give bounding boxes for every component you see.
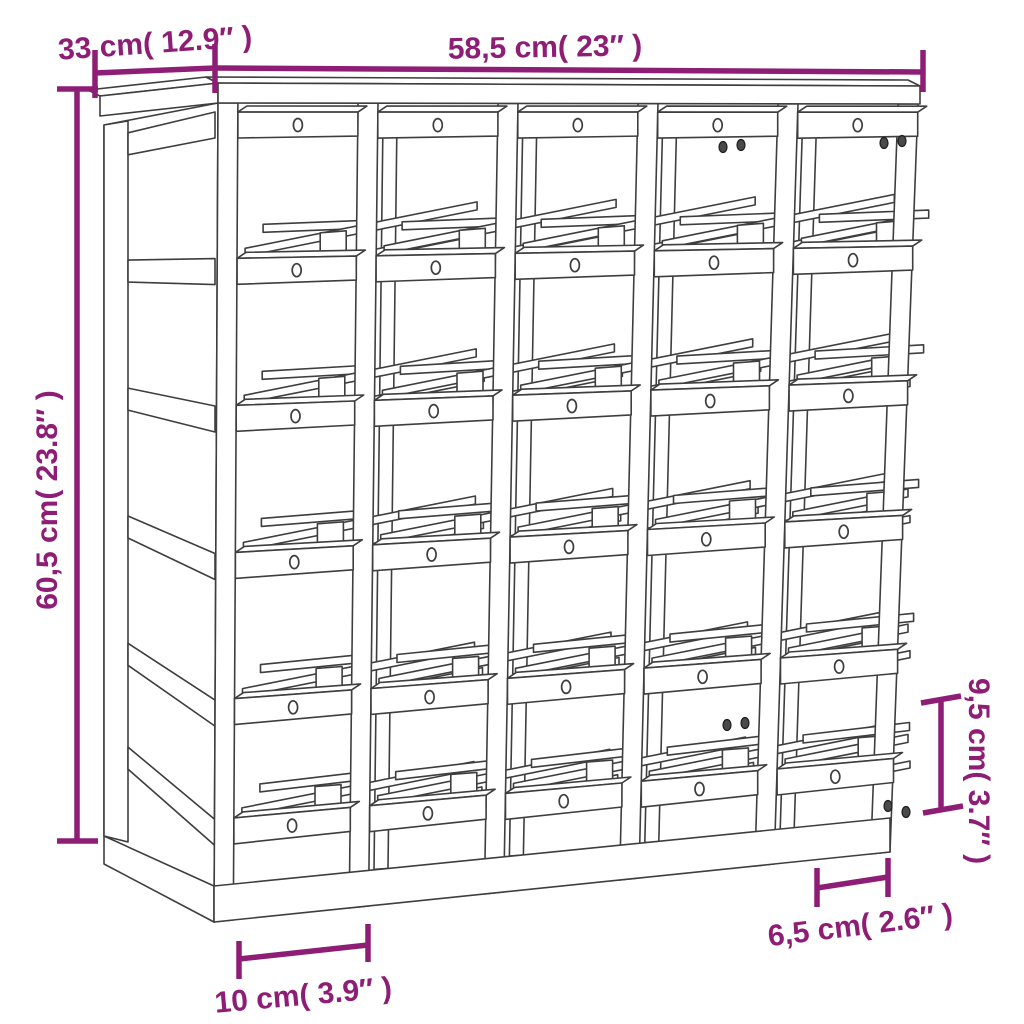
dim-label-slot-spacing: 6,5 cm( 2.6″ ) [766, 898, 955, 953]
diagram-canvas: 33 cm( 12.9″ ) 58,5 cm( 23″ ) 60,5 cm( 2… [0, 0, 1024, 1024]
dim-slot-height-tick-bottom [923, 806, 963, 813]
dim-label-height: 60,5 cm( 23.8″ ) [31, 390, 64, 610]
dim-label-slot-height: 9,5 cm( 3.7″ ) [962, 678, 995, 864]
dim-label-depth: 33 cm( 12.9″ ) [57, 20, 253, 66]
dim-width-line [215, 68, 923, 72]
dim-slot-spacing-line [817, 877, 888, 888]
dim-base-depth-line [239, 945, 368, 959]
wine-rack-drawing [88, 77, 929, 922]
dimension-diagram: 33 cm( 12.9″ ) 58,5 cm( 23″ ) 60,5 cm( 2… [0, 0, 1024, 1024]
dim-label-width: 58,5 cm( 23″ ) [448, 29, 643, 65]
dim-depth-line [95, 68, 215, 73]
